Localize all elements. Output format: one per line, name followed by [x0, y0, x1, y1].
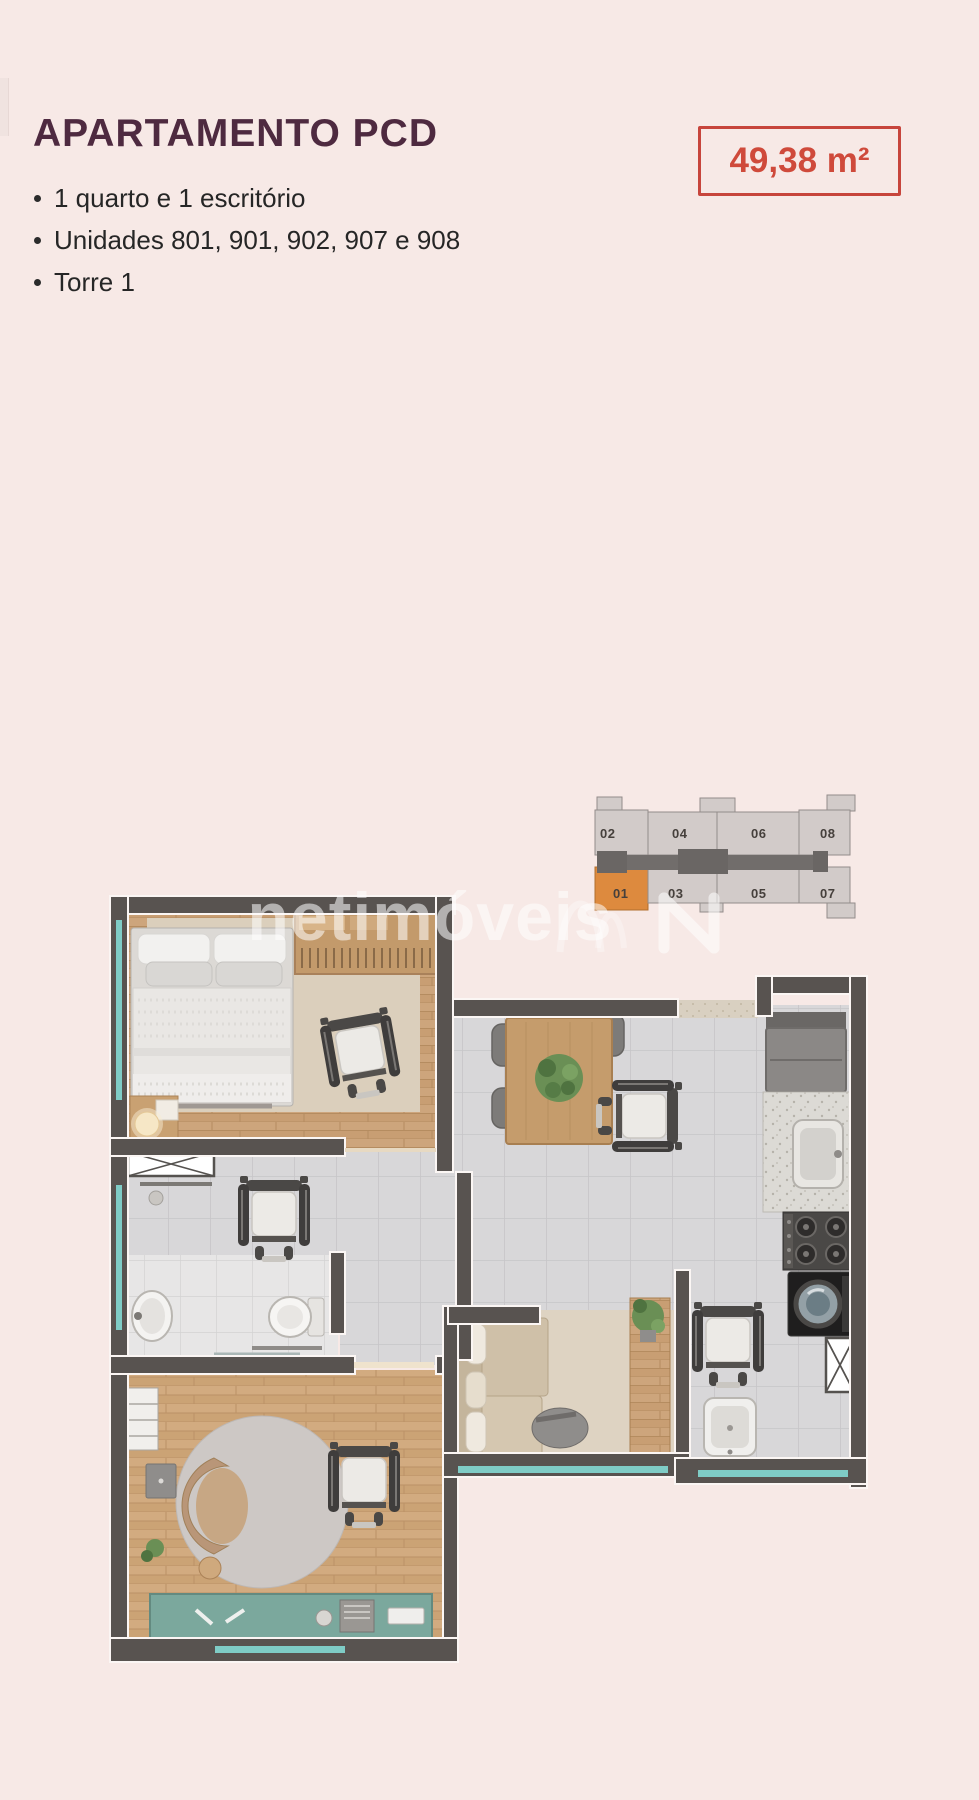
office-chair	[532, 1408, 588, 1448]
cooktop	[783, 1212, 852, 1270]
key-plan-unit-05: 05	[751, 886, 766, 901]
laundry-tub	[704, 1398, 756, 1456]
keyboard	[388, 1608, 424, 1624]
window-office	[215, 1646, 345, 1653]
floor-plan: 02 04 06 08 01 03 05 07	[0, 0, 979, 1800]
shelf-unit	[128, 1388, 158, 1450]
wall-living-top	[453, 999, 678, 1017]
toilet	[269, 1297, 324, 1337]
window-bathroom	[116, 1185, 122, 1330]
wall-office-top	[110, 1356, 355, 1374]
nightstand	[130, 1096, 178, 1142]
wall-bedroom-bottom	[110, 1138, 345, 1156]
window-bedroom	[116, 920, 122, 1100]
key-plan: 02 04 06 08 01 03 05 07	[595, 795, 855, 918]
watermark-text: netimóveis	[247, 879, 612, 955]
key-plan-unit-07: 07	[820, 886, 835, 901]
entry-mat	[678, 1000, 758, 1018]
stool	[199, 1557, 221, 1579]
bathroom-sink	[132, 1291, 172, 1341]
key-plan-unit-08: 08	[820, 826, 835, 841]
wall-sofa-room-bottom	[443, 1453, 690, 1477]
kitchen-sink	[793, 1120, 843, 1188]
key-plan-unit-02: 02	[600, 826, 615, 841]
brochure-page: APARTAMENTO PCD 49,38 m² 1 quarto e 1 es…	[0, 0, 979, 1800]
teal-desk	[150, 1594, 432, 1638]
wall-bathroom-stub	[330, 1252, 345, 1334]
key-plan-blocks	[595, 795, 855, 918]
window-laundry	[698, 1470, 848, 1477]
key-plan-unit-06: 06	[751, 826, 766, 841]
wall-laundry-left	[675, 1270, 690, 1472]
key-plan-unit-04: 04	[672, 826, 688, 841]
table-plant	[535, 1054, 583, 1102]
wall-entry-stub	[756, 976, 772, 1016]
wall-right	[850, 976, 867, 1488]
key-plan-unit-01: 01	[613, 886, 628, 901]
washer	[788, 1272, 852, 1336]
window-sofa-room	[458, 1466, 668, 1473]
lamp	[135, 1112, 159, 1136]
wall-sofa-room-stub	[448, 1306, 540, 1324]
